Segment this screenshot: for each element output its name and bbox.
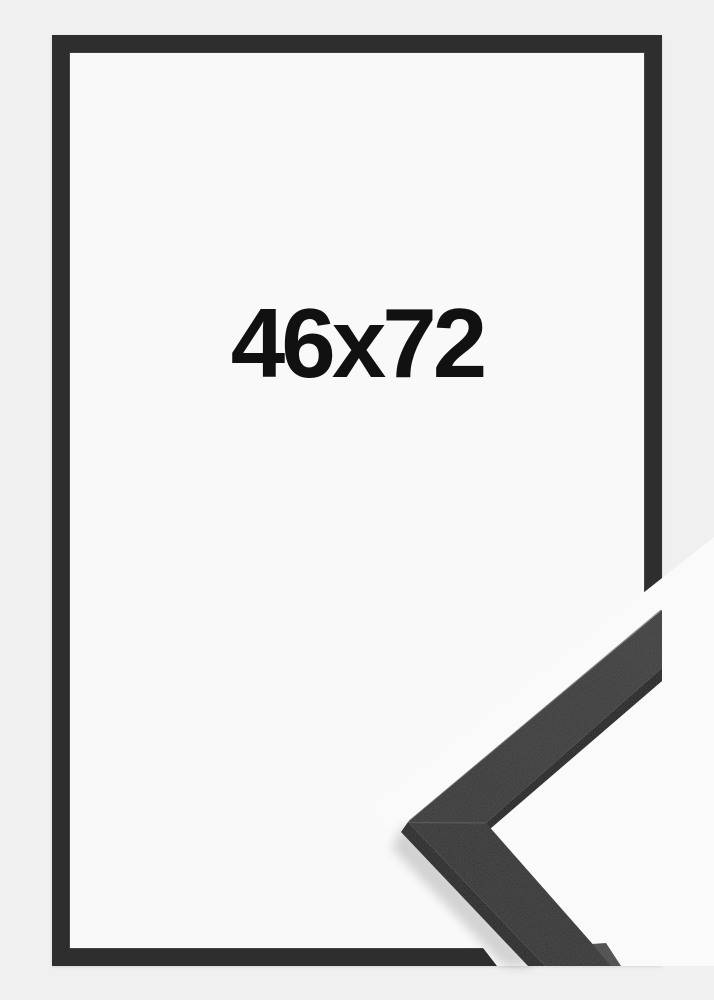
frame-opening	[69, 52, 645, 949]
size-label: 46x72	[52, 294, 662, 392]
picture-frame	[52, 35, 662, 966]
product-image: 46x72	[0, 0, 714, 1000]
